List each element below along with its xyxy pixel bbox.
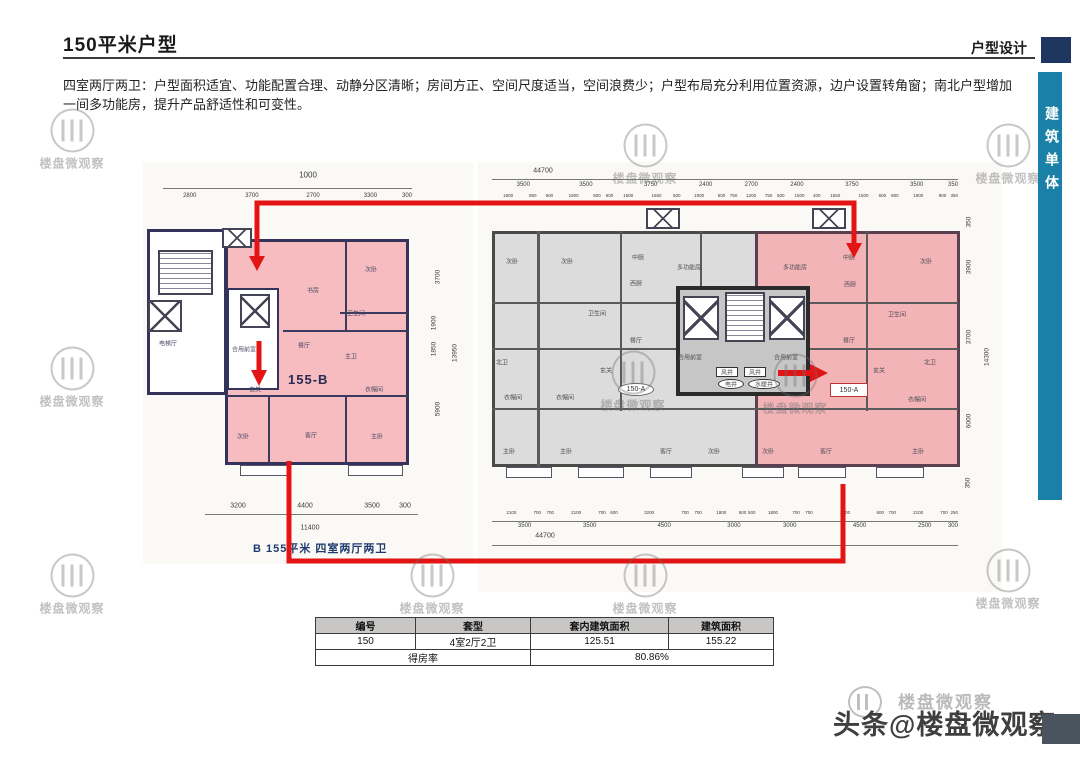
byline-watermark: 头条@楼盘微观察 bbox=[833, 703, 1056, 742]
chapter-tab: 建筑单体 bbox=[1038, 72, 1062, 500]
balcony bbox=[578, 467, 624, 478]
wall-segment bbox=[492, 408, 958, 410]
watermark-text: 楼盘微观察 bbox=[39, 155, 104, 172]
wall-segment bbox=[492, 348, 676, 350]
balcony bbox=[798, 467, 846, 478]
wall-segment bbox=[345, 397, 347, 465]
watermark-text: 楼盘微观察 bbox=[39, 600, 104, 617]
chapter-tab-label: 建筑单体 bbox=[1038, 106, 1062, 198]
balcony bbox=[348, 465, 403, 476]
cell-inner-area: 125.51 bbox=[531, 634, 669, 650]
wall-segment bbox=[810, 348, 958, 350]
dim-line bbox=[492, 521, 958, 522]
unit-label-155b: 155-B bbox=[288, 372, 328, 387]
balcony bbox=[650, 467, 692, 478]
elevator-icon bbox=[148, 300, 182, 332]
dim-total-top: 1000 bbox=[299, 171, 317, 180]
dim-total-top: 44700 bbox=[533, 168, 552, 175]
table-footer-row: 得房率 80.86% bbox=[316, 650, 774, 666]
balcony bbox=[742, 467, 784, 478]
dim-total-bottom: 44700 bbox=[535, 533, 554, 540]
wall-segment bbox=[810, 302, 958, 304]
wall-segment bbox=[283, 330, 409, 332]
corner-square-bottom bbox=[1042, 714, 1080, 744]
dim-line bbox=[492, 179, 958, 180]
balcony bbox=[506, 467, 552, 478]
cell-number: 150 bbox=[316, 634, 416, 650]
cell-type: 4室2厅2卫 bbox=[416, 634, 531, 650]
watermark-text: 楼盘微观察 bbox=[612, 600, 677, 617]
elevator-icon bbox=[683, 296, 719, 340]
wall-segment bbox=[225, 395, 409, 397]
dim-line bbox=[492, 545, 958, 546]
description-text: 四室两厅两卫：户型面积适宜、功能配置合理、动静分区清晰；房间方正、空间尺度适当，… bbox=[63, 76, 1021, 114]
corner-square-decoration bbox=[1041, 37, 1071, 63]
dim-row-bottom-2: 3500350045003000300045002500300 bbox=[492, 523, 958, 529]
watermark-text: 楼盘微观察 bbox=[39, 393, 104, 410]
stairs-icon bbox=[725, 292, 765, 342]
roof-platform-icon bbox=[646, 208, 680, 229]
watermark-logo-icon bbox=[50, 347, 94, 391]
col-header-inner-area: 套内建筑面积 bbox=[531, 618, 669, 634]
dim-row-top-1: 35003500375024002700240037503500350 bbox=[492, 182, 958, 188]
watermark: 楼盘微观察 bbox=[39, 347, 104, 410]
watermark-logo-icon bbox=[623, 124, 667, 168]
watermark: 楼盘微观察 bbox=[39, 554, 104, 617]
unit-label-150a-right: 150-A bbox=[830, 383, 868, 397]
slide-canvas: 150平米户型 户型设计 四室两厅两卫：户型面积适宜、功能配置合理、动静分区清晰… bbox=[0, 0, 1080, 759]
watermark-text: 楼盘微观察 bbox=[975, 595, 1040, 612]
cell-gross-area: 155.22 bbox=[669, 634, 774, 650]
watermark: 楼盘微观察 bbox=[39, 109, 104, 172]
wall-segment bbox=[268, 397, 270, 465]
watermark-logo-icon bbox=[50, 109, 94, 153]
cell-efficiency-label: 得房率 bbox=[316, 650, 531, 666]
cell-efficiency-value: 80.86% bbox=[531, 650, 774, 666]
dim-line bbox=[205, 514, 418, 515]
section-tag: 户型设计 bbox=[971, 38, 1027, 58]
balcony bbox=[240, 465, 290, 476]
wall-segment bbox=[700, 231, 702, 286]
watermark-text: 楼盘微观察 bbox=[399, 600, 464, 617]
col-header-type: 套型 bbox=[416, 618, 531, 634]
table-data-row: 150 4室2厅2卫 125.51 155.22 bbox=[316, 634, 774, 650]
balcony bbox=[876, 467, 924, 478]
roof-platform-icon bbox=[812, 208, 846, 229]
col-header-gross-area: 建筑面积 bbox=[669, 618, 774, 634]
unit-spec-table: 编号 套型 套内建筑面积 建筑面积 150 4室2厅2卫 125.51 155.… bbox=[315, 617, 774, 666]
plan-b-caption: B 155平米 四室两厅两卫 bbox=[253, 540, 387, 556]
col-header-number: 编号 bbox=[316, 618, 416, 634]
header-divider bbox=[63, 57, 1035, 59]
elevator-icon bbox=[769, 296, 805, 340]
shaft-icon bbox=[222, 228, 252, 248]
unit-label-150a-left: 150-A bbox=[618, 383, 654, 396]
watermark-logo-icon bbox=[50, 554, 94, 598]
page-title: 150平米户型 bbox=[63, 30, 178, 57]
dim-row-top: 2800370027003300300 bbox=[163, 193, 412, 199]
wall-segment bbox=[620, 231, 622, 411]
stairs-icon bbox=[158, 250, 213, 295]
dim-row-top-2: 1800950900180080060015001650600190060075… bbox=[492, 193, 958, 198]
elevator-icon bbox=[240, 294, 270, 328]
dim-row-bottom-1: 2100700700210070060032007007001800500500… bbox=[492, 510, 958, 515]
wall-segment bbox=[492, 302, 676, 304]
watermark-logo-icon bbox=[986, 124, 1030, 168]
table-header-row: 编号 套型 套内建筑面积 建筑面积 bbox=[316, 618, 774, 634]
dim-line bbox=[163, 188, 412, 189]
